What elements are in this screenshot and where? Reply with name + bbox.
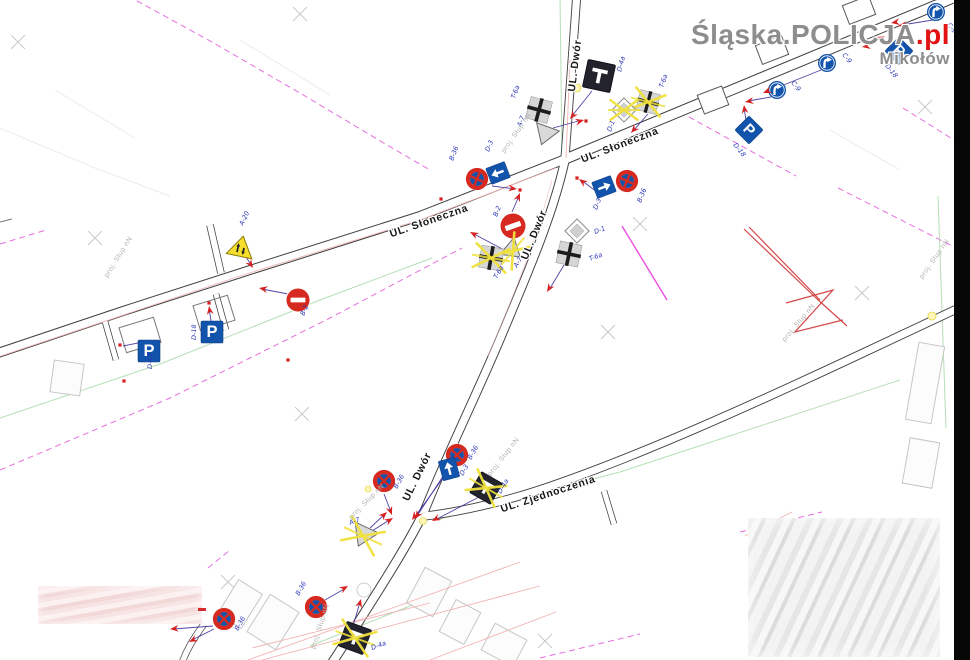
svg-text:P: P (206, 323, 217, 341)
sign-code-label: D-4a (496, 478, 511, 495)
redacted-area-bottom-right (748, 518, 940, 657)
watermark-city: Mikołów (691, 50, 950, 68)
redacted-area-bottom-left (38, 586, 202, 624)
leader-line (370, 514, 385, 528)
sign-code-label: D-3 (483, 139, 495, 153)
survey-cross (293, 7, 307, 21)
survey-cross (221, 575, 235, 589)
sign-a-7 (530, 123, 559, 149)
sign-code-label: T-6a (588, 251, 603, 263)
sign-code-label: D-4a (370, 639, 387, 652)
watermark-brand: Śląska.POLICJA.pl (691, 20, 950, 49)
sign-t-6a (555, 240, 583, 268)
survey-cross (295, 407, 309, 421)
survey-cross (855, 286, 869, 300)
mounting-dot (118, 343, 121, 346)
sign-code-label: B-36 (447, 145, 460, 162)
note-proj-slup: proj. Słup nN (487, 436, 521, 477)
sign-b-36 (213, 608, 236, 631)
leader-arrowhead (744, 97, 754, 105)
red-scribble-annotation (744, 227, 847, 332)
sign-code-label: C-9 (789, 79, 802, 93)
mounting-dot (518, 188, 521, 191)
sign-code-label: D-4a (615, 55, 627, 72)
mounting-dot (584, 119, 587, 122)
leader-arrowhead (468, 229, 479, 239)
sign-a-20 (226, 233, 256, 258)
sign-a-7 (338, 515, 387, 557)
mounting-dot (286, 358, 289, 361)
survey-cross (88, 231, 102, 245)
red-dash-mark (198, 608, 206, 611)
leader-arrowhead (384, 515, 395, 525)
mounting-dot (122, 379, 125, 382)
sign-code-label: B-36 (635, 187, 648, 204)
sign-code-label: D-1 (593, 224, 607, 235)
sign-code-label: D-18 (190, 324, 198, 340)
mounting-dot (439, 197, 442, 200)
note-proj-slup: proj. Słup nN (781, 303, 817, 343)
watermark-brand-grey: Śląska.POLICJA (691, 19, 916, 50)
survey-cross (918, 100, 932, 114)
manhole-circle (357, 583, 371, 597)
leader-arrowhead (258, 285, 268, 293)
sign-code-label: T-6a (657, 73, 669, 88)
sign-d-1 (565, 219, 589, 243)
right-edge-strip (954, 0, 970, 660)
parcel-boundary-solid (622, 226, 667, 300)
sign-code-label: B-36 (466, 444, 480, 461)
sign-code-label: B-2 (491, 205, 502, 218)
sign-code-label: D-1 (605, 119, 616, 133)
edge-tick (0, 219, 12, 222)
sign-code-label: D-3 (591, 197, 603, 211)
sign-code-label: T-6a (509, 84, 521, 99)
sign-d-18: P (201, 321, 223, 343)
sign-d-4a (582, 59, 615, 92)
sign-c-9 (768, 81, 786, 99)
sign-code-label: A-20 (237, 210, 251, 228)
sign-code-label: D-18 (146, 353, 154, 369)
mounting-dot (575, 176, 578, 179)
mounting-dot (207, 301, 210, 304)
survey-cross (633, 217, 647, 231)
sign-d-1 (608, 98, 640, 122)
sign-code-label: B-36 (294, 580, 308, 597)
sign-d-3 (592, 175, 617, 198)
leader-arrowhead (514, 192, 523, 202)
survey-cross (601, 325, 615, 339)
sign-code-label: D-18 (731, 141, 747, 158)
watermark-brand-red: .pl (916, 19, 950, 50)
leader-line (549, 265, 564, 290)
sign-d-18: P (735, 116, 763, 144)
map-page: PPPP C-9D-18C-9C-9D-18D-4aT-6aA-7T-6aD-1… (0, 0, 970, 660)
survey-cross (538, 634, 552, 648)
watermark: Śląska.POLICJA.pl Mikołów (691, 20, 950, 68)
leader-line (572, 91, 592, 116)
sign-b-36 (612, 166, 641, 195)
leader-arrowhead (339, 583, 350, 593)
note-proj-slup: proj. Słup nN (918, 238, 951, 280)
survey-cross (11, 35, 25, 49)
note-proj-slup: proj. Słup nN (103, 235, 134, 279)
leader-arrowhead (386, 506, 395, 516)
leader-line (173, 626, 213, 629)
